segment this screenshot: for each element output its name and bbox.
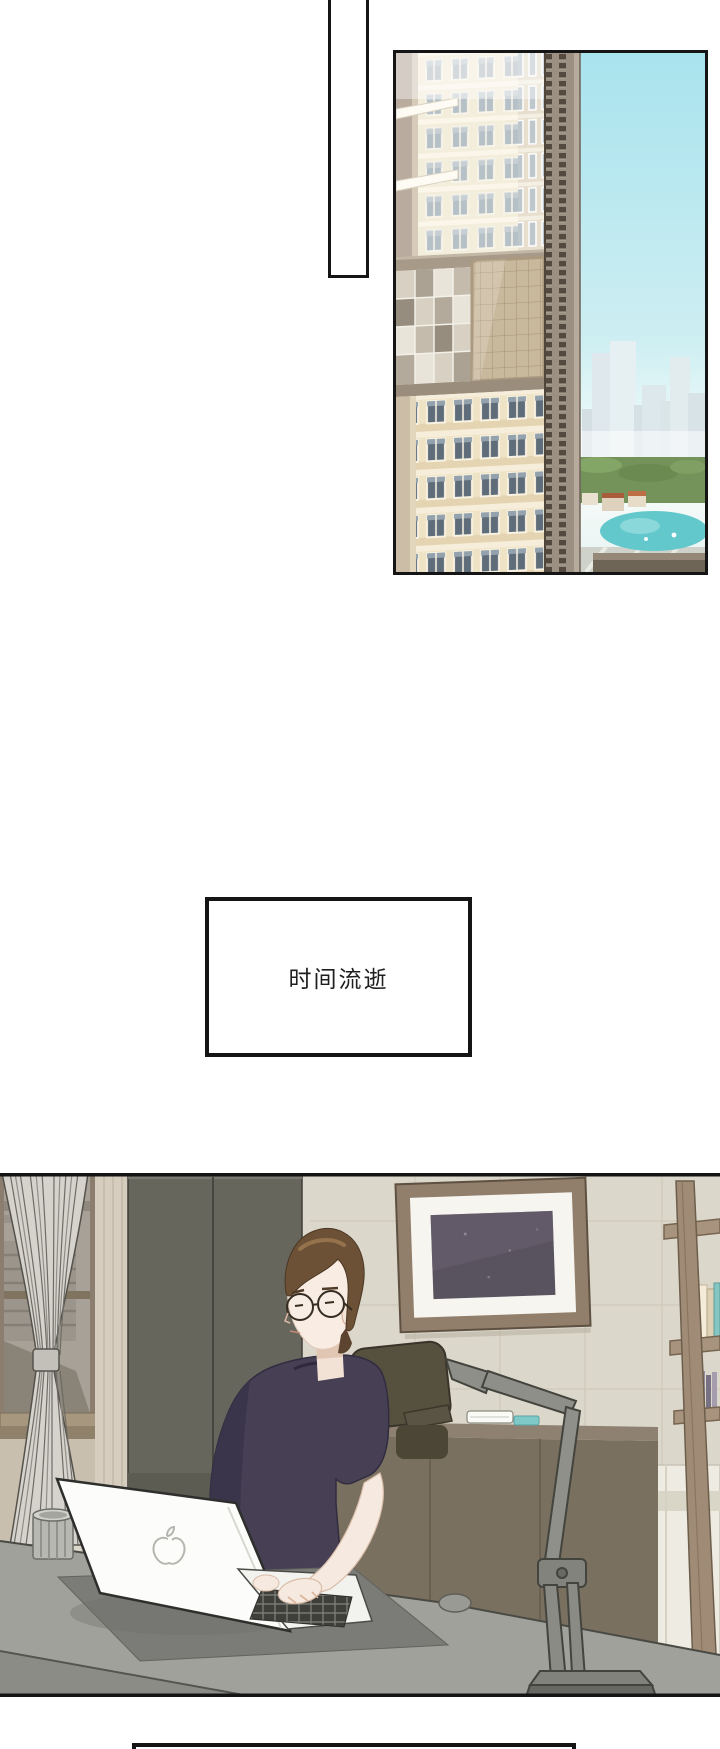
panel-empty-vertical: [328, 0, 369, 278]
panel-bottom-partial: [132, 1743, 576, 1749]
framed-picture: [395, 1178, 590, 1340]
panel-office-scene: [0, 1173, 720, 1697]
scene-top-border: [0, 1173, 720, 1177]
foreground-building: [396, 53, 544, 572]
office-scene-illustration: [0, 1173, 720, 1697]
coffee-mug: [33, 1509, 73, 1559]
curtain-tie: [33, 1349, 59, 1371]
panel-caption: 时间流逝: [205, 897, 472, 1057]
comic-page: 时间流逝: [0, 0, 720, 1749]
tower-strip: [544, 53, 580, 572]
caption-text: 时间流逝: [289, 960, 389, 994]
panel-cityscape: [393, 50, 708, 575]
cityscape-illustration: [396, 53, 705, 572]
scene-bottom-border: [0, 1694, 720, 1698]
computer-mouse: [439, 1594, 471, 1612]
